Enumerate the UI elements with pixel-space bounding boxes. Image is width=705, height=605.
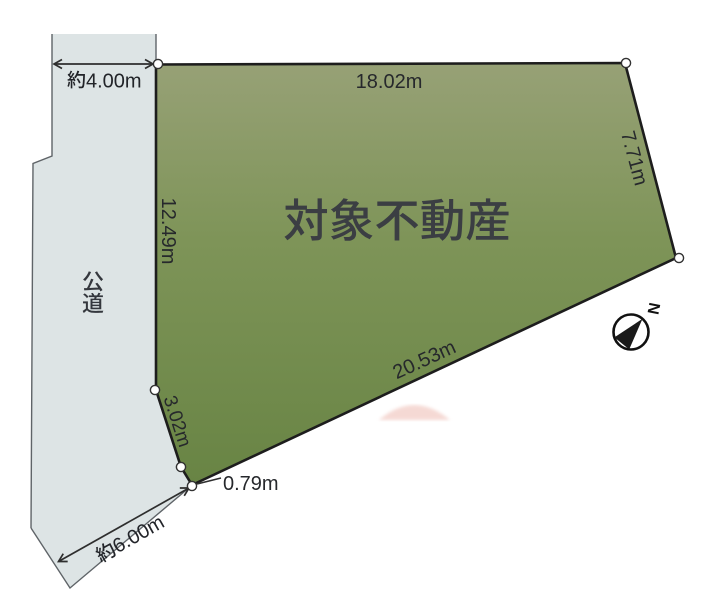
svg-text:12.49m: 12.49m bbox=[157, 198, 179, 265]
svg-text:4.00m: 4.00m bbox=[86, 71, 142, 93]
svg-text:18.02m: 18.02m bbox=[356, 71, 423, 93]
svg-text:0.79m: 0.79m bbox=[223, 473, 279, 495]
